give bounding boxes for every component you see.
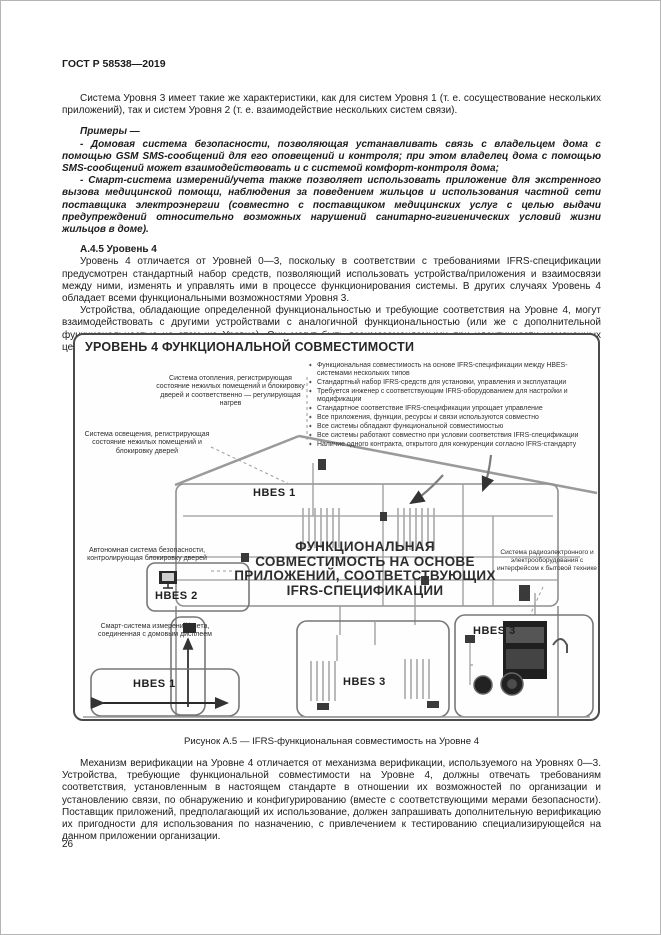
text-after-figure: Механизм верификации на Уровне 4 отличае… (62, 758, 601, 843)
monitor-icon (159, 571, 177, 588)
label-heating-system: Система отопления, регистрирующая состоя… (153, 375, 308, 409)
bullet-item: Стандартное соответствие IFRS-спецификац… (307, 405, 595, 413)
bullet-item: Функциональная совместимость на основе I… (307, 362, 595, 378)
central-line: ПРИЛОЖЕНИЙ, СООТВЕТСТВУЮЩИХ (215, 569, 515, 584)
examples-lead: Примеры — (62, 126, 601, 138)
hbes-label-top: HBES 1 (253, 487, 296, 499)
central-line: IFRS-СПЕЦИФИКАЦИИ (215, 584, 515, 599)
document-page: ГОСТ Р 58538—2019 Система Уровня 3 имеет… (0, 0, 661, 935)
bullet-item: Требуется инженер с соответствующим IFRS… (307, 388, 595, 404)
hbes-label-right-box: HBES 3 (473, 625, 516, 637)
figure-a5: УРОВЕНЬ 4 ФУНКЦИОНАЛЬНОЙ СОВМЕСТИМОСТИ Ф… (73, 333, 600, 721)
label-smart-meter-system: Смарт-система измерений/учета, соединенн… (91, 623, 219, 640)
bullet-item: Наличие одного контракта, открытого для … (307, 441, 595, 449)
figure-title: УРОВЕНЬ 4 ФУНКЦИОНАЛЬНОЙ СОВМЕСТИМОСТИ (85, 340, 414, 354)
label-lighting-system: Система освещения, регистрирующая состоя… (83, 431, 211, 456)
bullet-item: Стандартный набор IFRS-средств для устан… (307, 379, 595, 387)
doc-header: ГОСТ Р 58538—2019 (62, 58, 601, 70)
hbes1-box (91, 669, 239, 716)
bullet-item: Все приложения, функции, ресурсы и связи… (307, 414, 595, 422)
central-line: СОВМЕСТИМОСТЬ НА ОСНОВЕ (215, 555, 515, 570)
text-column: ГОСТ Р 58538—2019 Система Уровня 3 имеет… (62, 1, 601, 354)
paragraph-level4-a: Уровень 4 отличается от Уровней 0—3, пос… (62, 256, 601, 305)
hbes-label-left: HBES 2 (155, 590, 198, 602)
figure-bullet-list: Функциональная совместимость на основе I… (307, 362, 595, 450)
central-line: ФУНКЦИОНАЛЬНАЯ (215, 540, 515, 555)
bullet-item: Все системы работают совместно при услов… (307, 432, 595, 440)
figure-frame: УРОВЕНЬ 4 ФУНКЦИОНАЛЬНОЙ СОВМЕСТИМОСТИ Ф… (73, 333, 600, 721)
example-2: - Смарт-система измерений/учета также по… (62, 175, 601, 236)
figure-caption: Рисунок А.5 — IFRS-функциональная совмес… (62, 736, 601, 747)
label-security-system: Автономная система безопасности, контрол… (83, 547, 211, 564)
washing-machine-icon (474, 673, 523, 695)
page-number: 26 (62, 839, 73, 850)
paragraph-verification: Механизм верификации на Уровне 4 отличае… (62, 758, 601, 843)
section-heading: А.4.5 Уровень 4 (62, 244, 601, 256)
hbes-label-bottom-mid: HBES 3 (343, 676, 386, 688)
bullet-item: Все системы обладают функциональной совм… (307, 423, 595, 431)
bullet-arrows (411, 455, 491, 503)
central-overlay-text: ФУНКЦИОНАЛЬНАЯ СОВМЕСТИМОСТЬ НА ОСНОВЕ П… (215, 540, 515, 598)
faucet-icon (553, 639, 567, 653)
example-1: - Домовая система безопасности, позволяю… (62, 139, 601, 176)
paragraph-level3: Система Уровня 3 имеет такие же характер… (62, 93, 601, 117)
hbes-label-bottom-left: HBES 1 (133, 678, 176, 690)
hbes3-mid-box (297, 621, 449, 717)
